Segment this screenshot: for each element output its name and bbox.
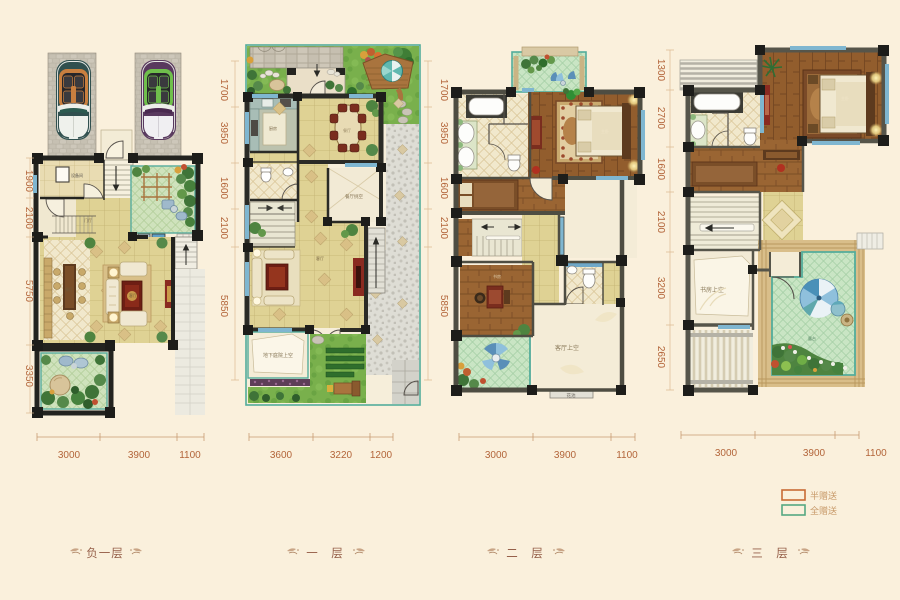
svg-text:门厅: 门厅 — [84, 217, 92, 223]
svg-text:3220: 3220 — [330, 450, 353, 461]
svg-text:餐厅: 餐厅 — [343, 127, 351, 133]
svg-text:1100: 1100 — [179, 450, 201, 461]
svg-text:3950: 3950 — [218, 122, 229, 145]
svg-text:主卧: 主卧 — [601, 128, 609, 134]
svg-text:3900: 3900 — [128, 450, 151, 461]
svg-text:一 层: 一 层 — [306, 547, 344, 560]
svg-text:3900: 3900 — [803, 448, 826, 459]
svg-text:3950: 3950 — [438, 122, 449, 145]
svg-text:客厅: 客厅 — [129, 292, 137, 298]
svg-text:3000: 3000 — [715, 448, 738, 459]
svg-text:主卧: 主卧 — [841, 95, 849, 101]
svg-text:3200: 3200 — [655, 277, 666, 300]
svg-text:厨房: 厨房 — [269, 125, 277, 131]
svg-text:1100: 1100 — [616, 450, 638, 461]
svg-text:三 层: 三 层 — [751, 547, 789, 560]
svg-text:1600: 1600 — [218, 177, 229, 200]
svg-text:餐厅: 餐厅 — [65, 286, 73, 292]
svg-text:1100: 1100 — [865, 448, 887, 459]
svg-text:5750: 5750 — [23, 280, 34, 303]
svg-text:1700: 1700 — [218, 79, 229, 102]
svg-text:3350: 3350 — [23, 365, 34, 388]
svg-text:负一层: 负一层 — [86, 546, 124, 560]
svg-text:全赠送: 全赠送 — [810, 505, 837, 516]
svg-text:3000: 3000 — [485, 450, 508, 461]
svg-text:1600: 1600 — [438, 177, 449, 200]
svg-text:2100: 2100 — [655, 211, 666, 234]
svg-text:2100: 2100 — [218, 217, 229, 240]
svg-text:5850: 5850 — [438, 295, 449, 318]
svg-text:二 层: 二 层 — [506, 547, 544, 560]
svg-text:1200: 1200 — [370, 450, 393, 461]
svg-text:客厅上空: 客厅上空 — [555, 344, 579, 352]
svg-text:2650: 2650 — [655, 346, 666, 369]
svg-text:3900: 3900 — [554, 450, 577, 461]
svg-text:1300: 1300 — [655, 59, 666, 82]
svg-text:设备间: 设备间 — [71, 172, 83, 178]
svg-text:5850: 5850 — [218, 295, 229, 318]
svg-text:露台: 露台 — [808, 335, 816, 341]
svg-text:客厅: 客厅 — [316, 255, 324, 261]
svg-text:花池: 花池 — [567, 392, 576, 399]
svg-text:1600: 1600 — [655, 158, 666, 181]
svg-text:半赠送: 半赠送 — [810, 490, 837, 501]
svg-text:地下庭院上空: 地下庭院上空 — [263, 352, 293, 359]
svg-text:2100: 2100 — [438, 217, 449, 240]
svg-text:餐厅挑空: 餐厅挑空 — [345, 193, 363, 200]
svg-text:1700: 1700 — [438, 79, 449, 102]
svg-text:3000: 3000 — [58, 450, 81, 461]
svg-text:书房: 书房 — [493, 273, 501, 279]
svg-text:3600: 3600 — [270, 450, 293, 461]
svg-text:2100: 2100 — [23, 207, 34, 230]
svg-text:2700: 2700 — [655, 107, 666, 130]
svg-text:1900: 1900 — [23, 170, 34, 193]
